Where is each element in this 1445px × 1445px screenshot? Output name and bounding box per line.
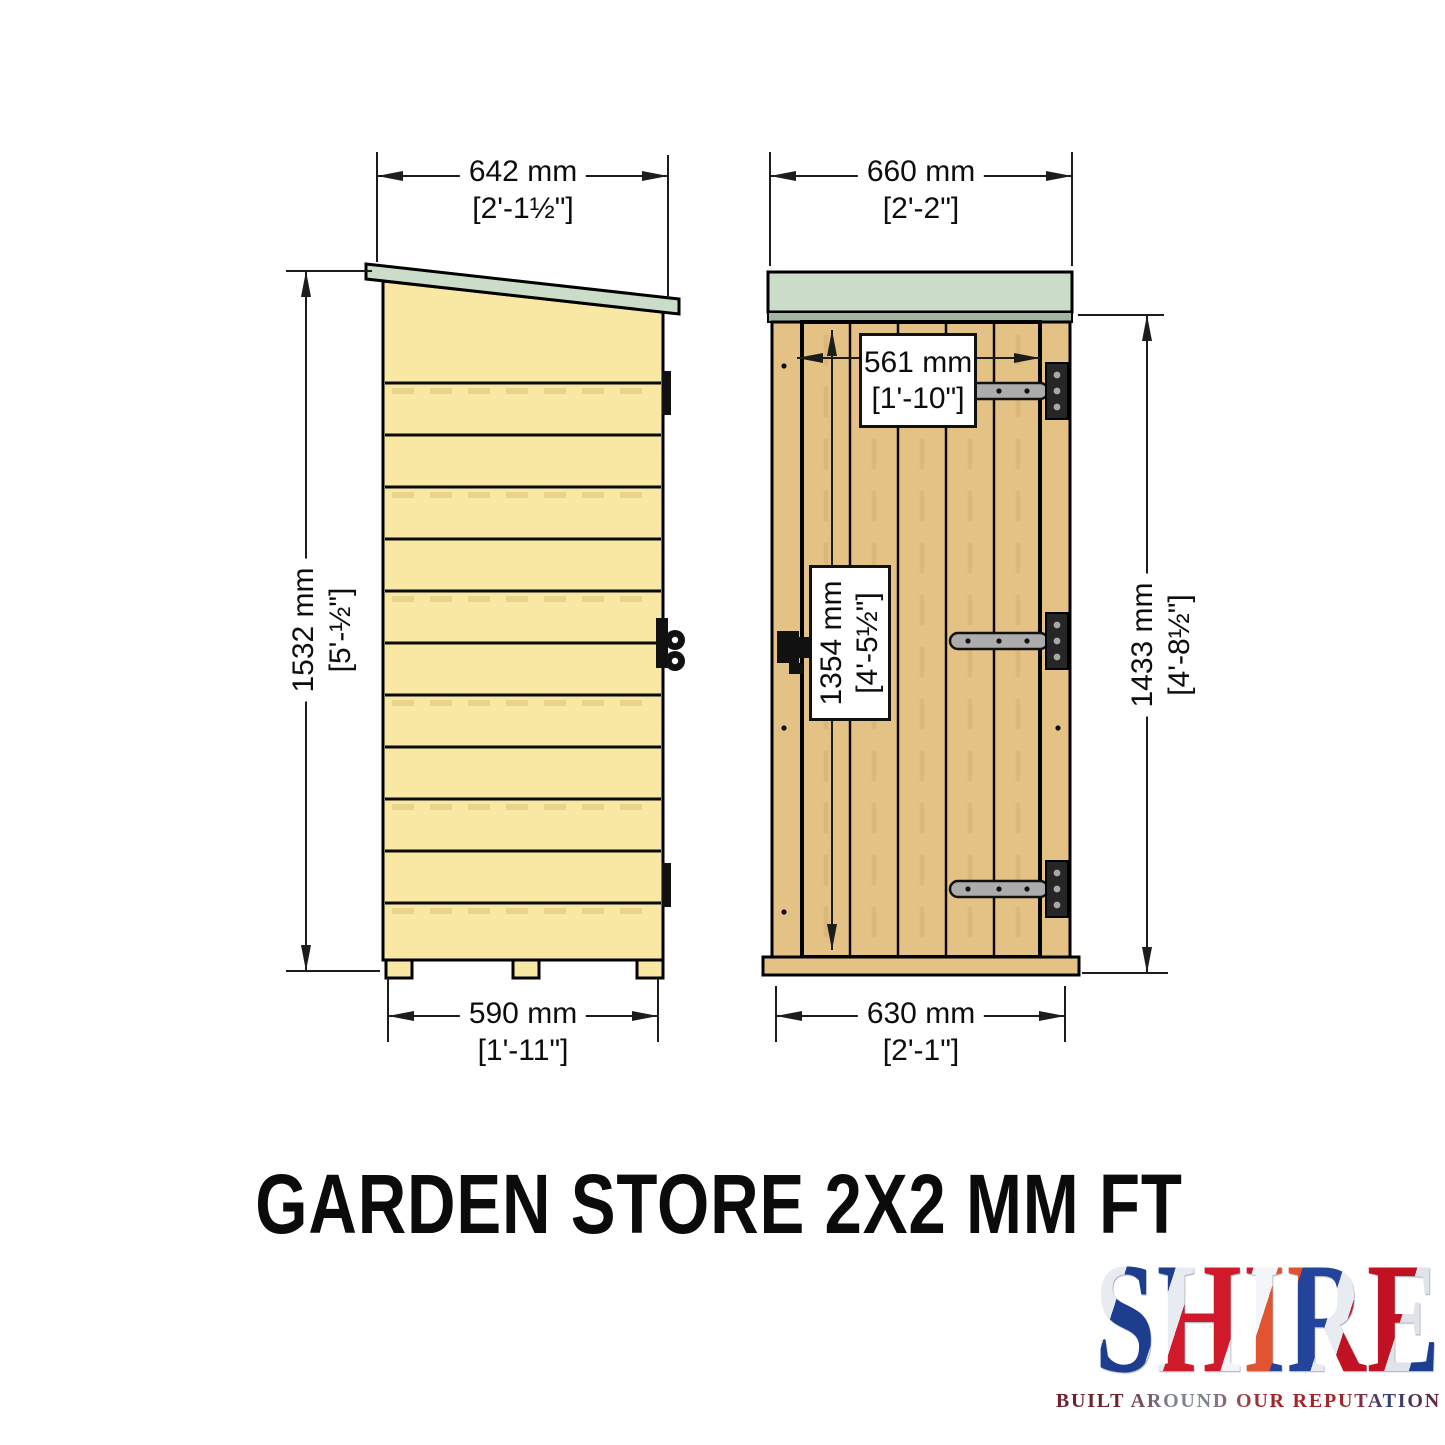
dim-mm-text: 660 mm (858, 153, 984, 190)
dim-ftin-text: [1'-11"] (469, 1032, 578, 1069)
dim-ftin-text: [2'-2"] (874, 190, 968, 227)
drawing-page: 642 mm [2'-1½"] 660 mm [2'-2"] 1532 mm [… (0, 0, 1445, 1445)
dim-front-height-label: 1433 mm [4'-8½"] (1124, 573, 1198, 716)
shire-logo-wordmark: SHIRE (1082, 1240, 1441, 1398)
dim-ftin-text: [1'-10"] (871, 381, 964, 417)
drawing-title: GARDEN STORE 2X2 MM FT (255, 1156, 1182, 1253)
side-door-latch (656, 618, 685, 671)
dim-door-width-label: 561 mm [1'-10"] (859, 333, 977, 428)
dim-ftin-text: [4'-8½"] (1161, 585, 1198, 704)
dim-side-base-label: 590 mm [1'-11"] (460, 995, 586, 1069)
side-view (366, 264, 685, 978)
dim-ftin-text: [2'-1½"] (463, 190, 582, 227)
shire-logo: SHIRE BUILT AROUND OUR REPUTATION (921, 1240, 1441, 1413)
dim-side-height-label: 1532 mm [5'-½"] (285, 558, 359, 701)
dim-mm-text: 630 mm (858, 995, 984, 1032)
dim-door-height-label: 1354 mm [4'-5½"] (809, 565, 891, 721)
front-base (763, 957, 1079, 975)
front-roof (768, 272, 1072, 312)
dim-ftin-text: [4'-5½"] (850, 592, 886, 693)
dim-mm-text: 1532 mm (285, 558, 322, 701)
dim-front-width-label: 660 mm [2'-2"] (858, 153, 984, 227)
dim-mm-text: 642 mm (460, 153, 586, 190)
dim-mm-text: 590 mm (460, 995, 586, 1032)
dim-front-base-label: 630 mm [2'-1"] (858, 995, 984, 1069)
side-feet (386, 960, 663, 978)
dim-ftin-text: [2'-1"] (874, 1032, 968, 1069)
dim-mm-text: 561 mm (864, 345, 972, 381)
dim-ftin-text: [5'-½"] (322, 579, 359, 682)
dim-side-width-label: 642 mm [2'-1½"] (460, 153, 586, 227)
dim-mm-text: 1433 mm (1124, 573, 1161, 716)
dim-mm-text: 1354 mm (814, 580, 850, 705)
